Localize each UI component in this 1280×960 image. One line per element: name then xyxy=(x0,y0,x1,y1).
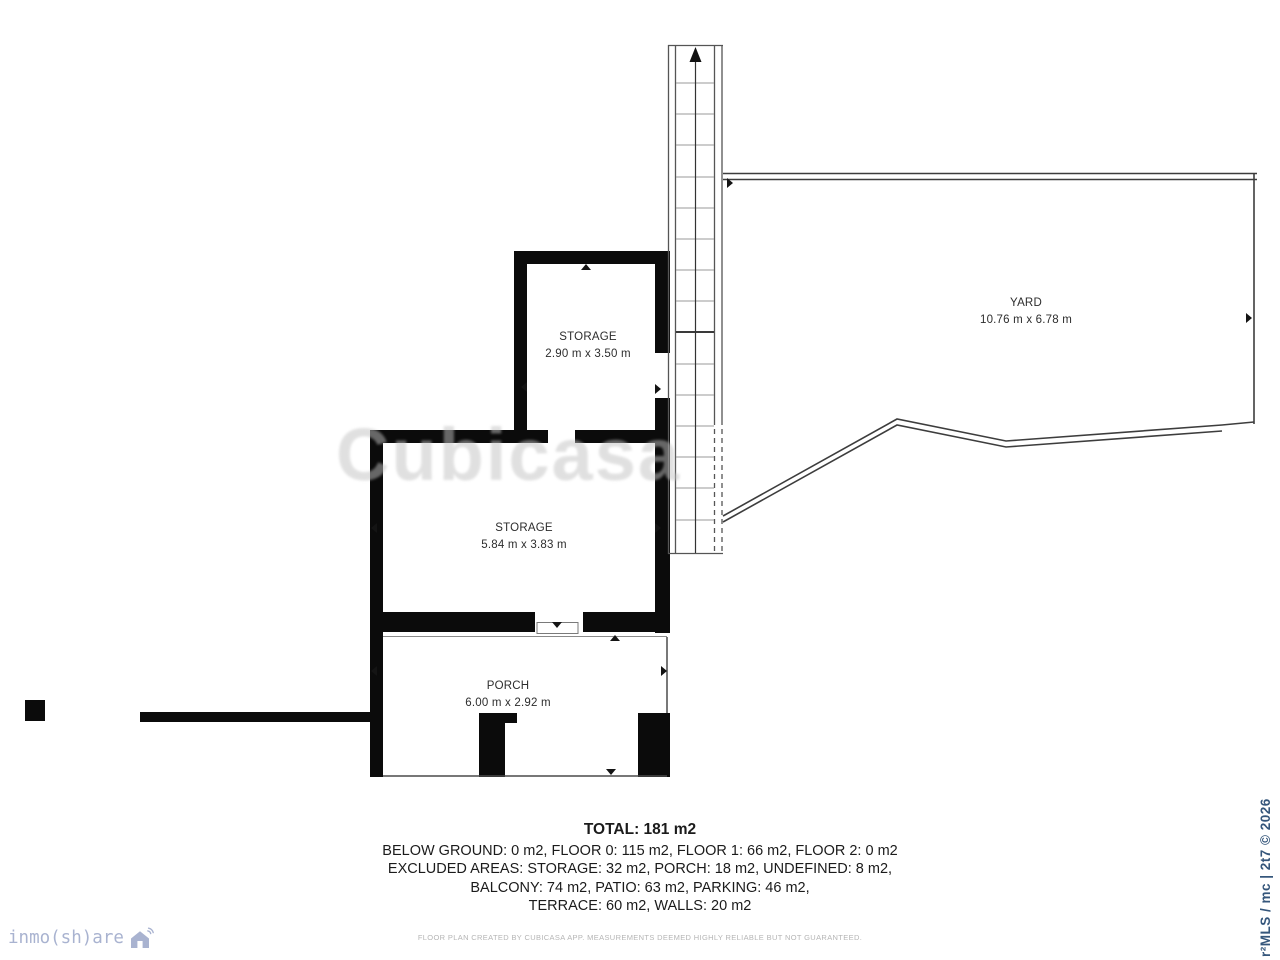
room-label-storage-lower: STORAGE 5.84 m x 3.83 m xyxy=(481,520,566,554)
room-name: YARD xyxy=(980,295,1072,312)
room-label-yard: YARD 10.76 m x 6.78 m xyxy=(980,295,1072,329)
wall xyxy=(140,712,378,722)
summary-line: BALCONY: 74 m2, PATIO: 63 m2, PARKING: 4… xyxy=(0,879,1280,897)
wall-pillar xyxy=(505,713,517,723)
yard-boundary xyxy=(723,173,1257,522)
wall xyxy=(655,251,670,353)
wall-pillar xyxy=(479,713,505,777)
wall xyxy=(575,430,670,443)
floorplan-page: Cubicasa STORAGE 2.90 m x 3.50 m STORAGE… xyxy=(0,0,1280,960)
staircase xyxy=(668,45,723,554)
wall xyxy=(514,251,670,264)
wall xyxy=(583,612,670,632)
room-dimensions: 5.84 m x 3.83 m xyxy=(481,537,566,554)
disclaimer-text: FLOOR PLAN CREATED BY CUBICASA APP. MEAS… xyxy=(0,933,1280,942)
room-dimensions: 2.90 m x 3.50 m xyxy=(545,346,630,363)
room-dimensions: 6.00 m x 2.92 m xyxy=(465,695,550,712)
summary-line: TERRACE: 60 m2, WALLS: 20 m2 xyxy=(0,897,1280,915)
room-name: STORAGE xyxy=(545,329,630,346)
summary-line: EXCLUDED AREAS: STORAGE: 32 m2, PORCH: 1… xyxy=(0,860,1280,878)
summary-line: BELOW GROUND: 0 m2, FLOOR 0: 115 m2, FLO… xyxy=(0,842,1280,860)
wall xyxy=(370,430,548,443)
room-label-porch: PORCH 6.00 m x 2.92 m xyxy=(465,678,550,712)
wall xyxy=(370,430,383,777)
wall xyxy=(370,612,535,632)
summary-total: TOTAL: 181 m2 xyxy=(0,821,1280,839)
side-credit-text: r²MLS / mc | 2t7 © 2026 xyxy=(1258,798,1273,957)
room-label-storage-upper: STORAGE 2.90 m x 3.50 m xyxy=(545,329,630,363)
wall-pillar xyxy=(638,713,670,777)
wall-post xyxy=(25,700,45,721)
house-share-icon xyxy=(128,927,154,949)
stair-up-arrow-icon xyxy=(690,47,702,62)
room-dimensions: 10.76 m x 6.78 m xyxy=(980,312,1072,329)
area-summary: TOTAL: 181 m2 BELOW GROUND: 0 m2, FLOOR … xyxy=(0,821,1280,915)
brand-logo: inmo(sh)are xyxy=(8,927,154,949)
room-name: PORCH xyxy=(465,678,550,695)
room-name: STORAGE xyxy=(481,520,566,537)
brand-logo-text: inmo(sh)are xyxy=(8,928,124,948)
wall xyxy=(514,251,527,442)
floorplan-drawing xyxy=(0,0,1280,960)
